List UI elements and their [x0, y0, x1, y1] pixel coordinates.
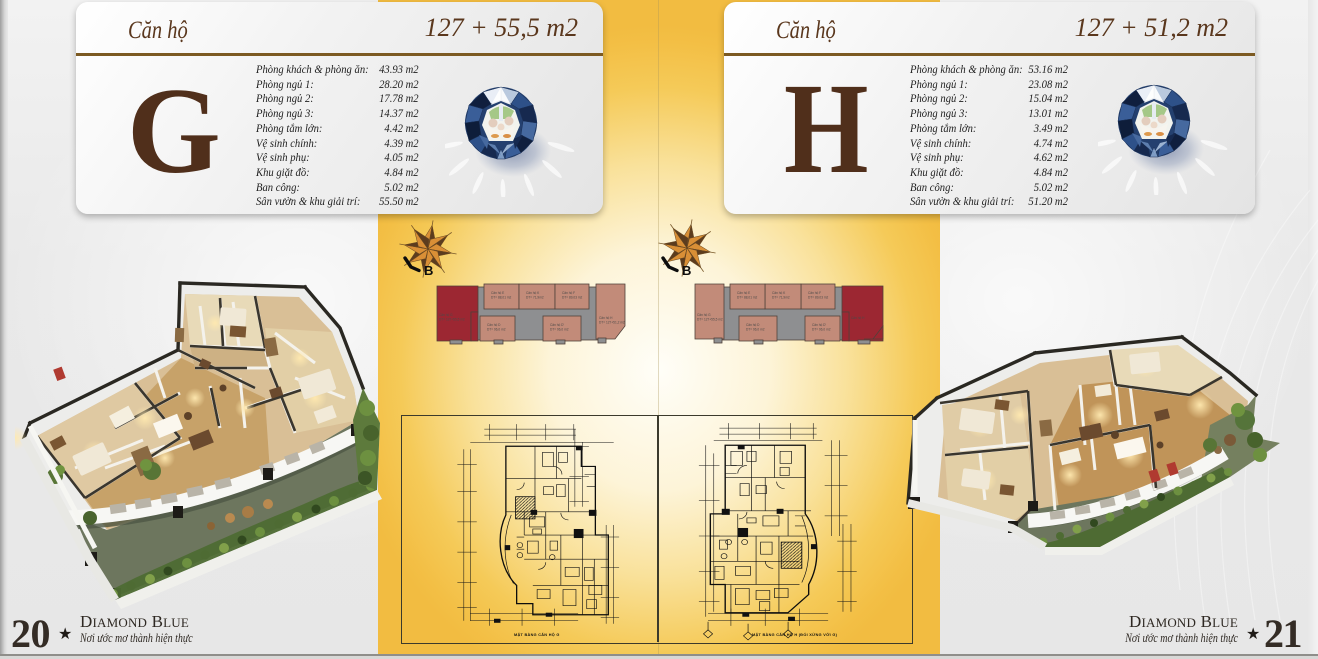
svg-text:DT= 71,9m2: DT= 71,9m2 [772, 296, 790, 300]
svg-text:Căn hộ D: Căn hộ D [487, 323, 501, 327]
svg-text:DT= 127+55,5 m2: DT= 127+55,5 m2 [439, 318, 465, 322]
svg-text:DT= 71,9m2: DT= 71,9m2 [526, 296, 544, 300]
svg-text:Căn hộ E: Căn hộ E [491, 291, 504, 295]
svg-text:Căn hộ K: Căn hộ K [772, 291, 786, 295]
svg-text:Căn hộ G: Căn hộ G [697, 313, 711, 317]
svg-text:Căn hộ K: Căn hộ K [526, 291, 540, 295]
svg-text:DT= 127+55,5 m2: DT= 127+55,5 m2 [697, 318, 723, 322]
svg-text:Căn hộ H: Căn hộ H [851, 316, 865, 320]
svg-text:DT= 96,0 m2: DT= 96,0 m2 [487, 328, 506, 332]
svg-text:DT= 96,0 m2: DT= 96,0 m2 [812, 328, 831, 332]
svg-text:Căn hộ E: Căn hộ E [737, 291, 750, 295]
svg-text:DT= 88,01 m2: DT= 88,01 m2 [491, 296, 512, 300]
svg-text:DT= 96,0 m2: DT= 96,0 m2 [550, 328, 569, 332]
svg-text:Căn hộ D': Căn hộ D' [550, 323, 564, 327]
svg-text:DT= 89,03 m2: DT= 89,03 m2 [808, 296, 829, 300]
svg-text:Căn hộ H: Căn hộ H [599, 316, 613, 320]
svg-text:DT= 96,0 m2: DT= 96,0 m2 [746, 328, 765, 332]
svg-text:Căn hộ D': Căn hộ D' [812, 323, 826, 327]
svg-text:Căn hộ F: Căn hộ F [808, 291, 821, 295]
svg-text:Căn hộ G: Căn hộ G [439, 313, 453, 317]
svg-text:DT= 127+51,2 m2: DT= 127+51,2 m2 [599, 321, 625, 325]
svg-text:DT= 88,01 m2: DT= 88,01 m2 [737, 296, 758, 300]
svg-text:Căn hộ D: Căn hộ D [746, 323, 760, 327]
svg-text:Căn hộ F: Căn hộ F [562, 291, 575, 295]
svg-text:DT= 89,03 m2: DT= 89,03 m2 [562, 296, 583, 300]
